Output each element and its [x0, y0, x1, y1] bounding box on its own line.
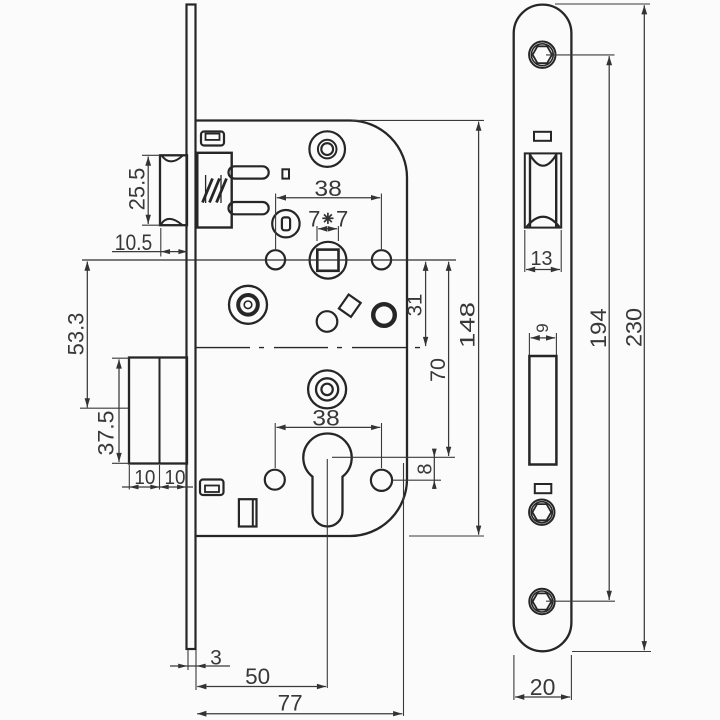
svg-text:8: 8: [415, 463, 437, 474]
svg-text:10: 10: [134, 467, 155, 489]
svg-text:230: 230: [622, 308, 647, 347]
svg-text:31: 31: [404, 294, 427, 317]
svg-text:7: 7: [308, 206, 320, 231]
svg-text:38: 38: [314, 176, 342, 201]
svg-text:38: 38: [312, 406, 340, 431]
svg-text:70: 70: [426, 358, 450, 382]
svg-text:25.5: 25.5: [124, 168, 149, 211]
svg-text:20: 20: [530, 674, 556, 700]
svg-text:53.3: 53.3: [64, 313, 89, 356]
svg-text:7: 7: [336, 206, 348, 231]
svg-text:9: 9: [533, 323, 552, 332]
svg-text:194: 194: [586, 308, 611, 348]
svg-text:50: 50: [245, 664, 270, 689]
svg-text:10.5: 10.5: [115, 230, 153, 255]
svg-text:37.5: 37.5: [94, 411, 119, 456]
svg-text:13: 13: [531, 248, 553, 270]
svg-text:3: 3: [210, 647, 222, 670]
svg-text:77: 77: [278, 691, 303, 716]
svg-text:148: 148: [456, 302, 480, 348]
svg-text:10: 10: [165, 467, 186, 489]
